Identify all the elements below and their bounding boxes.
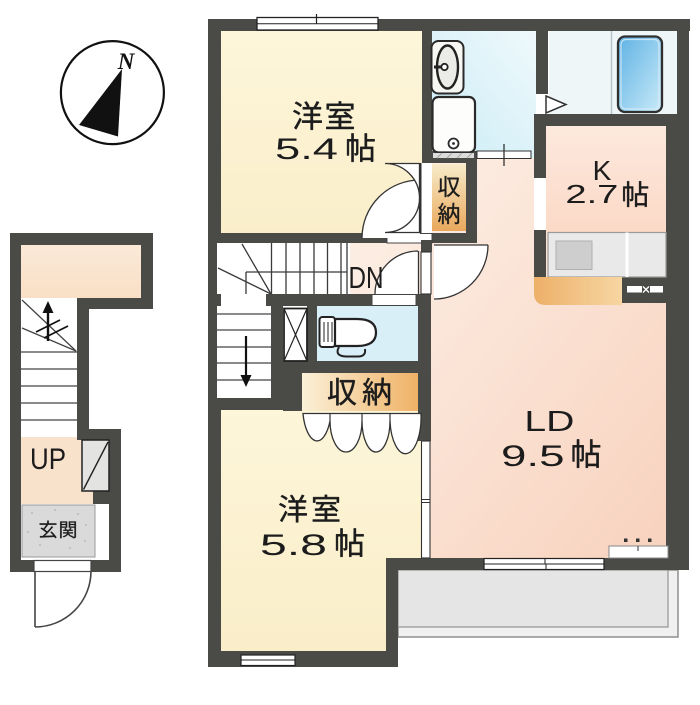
svg-text:5.4: 5.4 [275, 133, 338, 166]
svg-text:N: N [117, 49, 136, 74]
svg-text:2.7: 2.7 [565, 179, 618, 209]
svg-text:LD: LD [524, 406, 574, 438]
svg-text:DN: DN [349, 260, 384, 295]
svg-text:9.5: 9.5 [501, 440, 565, 473]
svg-text:5.8: 5.8 [260, 529, 327, 562]
svg-text:UP: UP [30, 443, 66, 476]
